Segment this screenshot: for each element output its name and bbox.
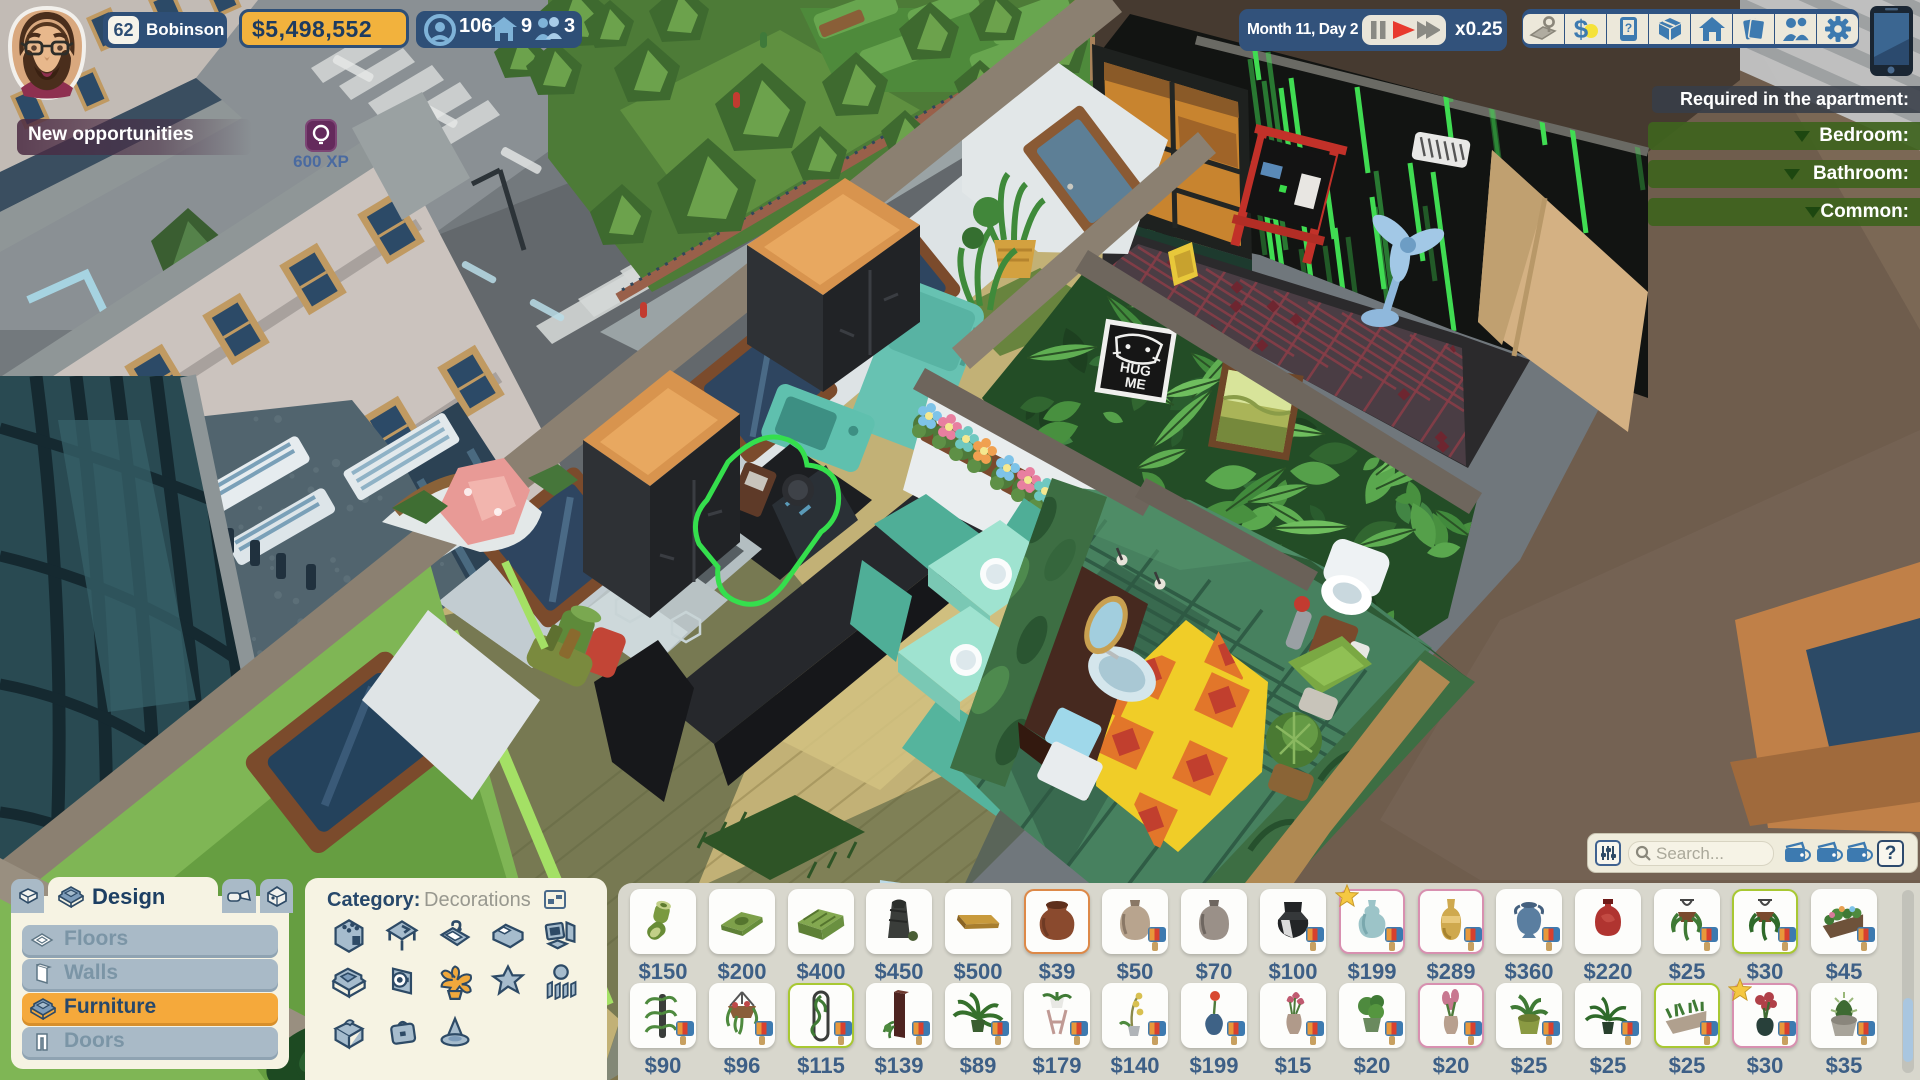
svg-text:$: $ [1573,15,1588,43]
svg-text:?: ? [1624,21,1631,35]
svg-text:ME: ME [1124,374,1147,393]
